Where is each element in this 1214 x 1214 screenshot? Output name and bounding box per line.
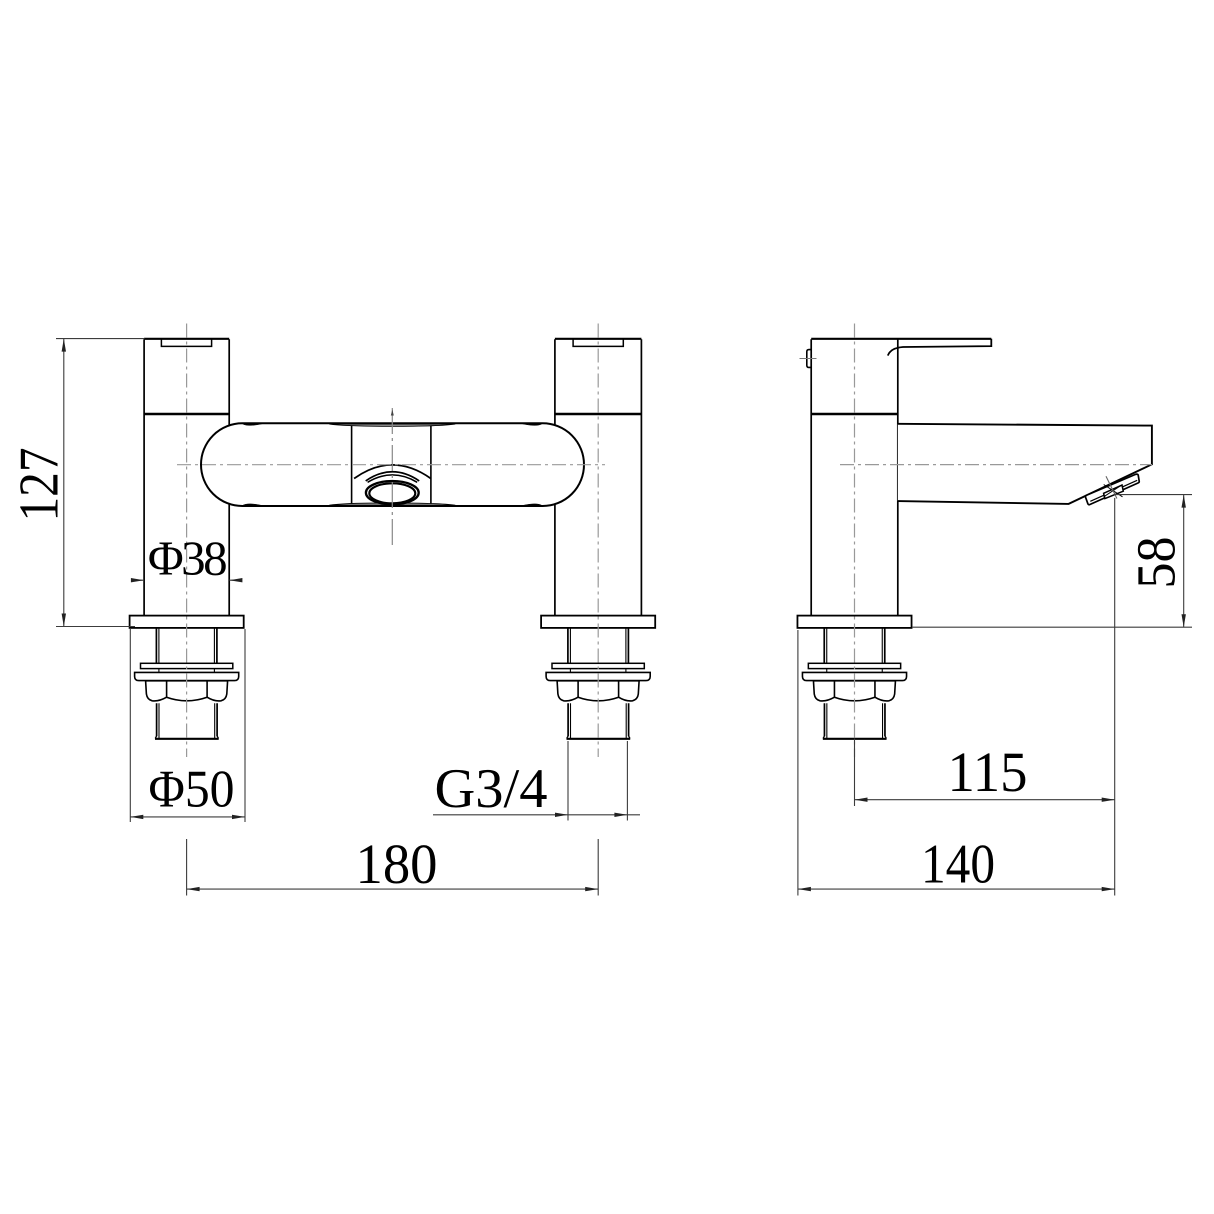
svg-text:58: 58 [1126,537,1187,589]
svg-text:127: 127 [9,448,71,522]
svg-text:115: 115 [947,741,1027,804]
svg-text:180: 180 [355,833,437,896]
svg-text:Φ38: Φ38 [148,531,226,586]
svg-text:Φ50: Φ50 [148,760,234,818]
svg-text:G3/4: G3/4 [434,758,547,820]
svg-text:140: 140 [921,833,995,895]
